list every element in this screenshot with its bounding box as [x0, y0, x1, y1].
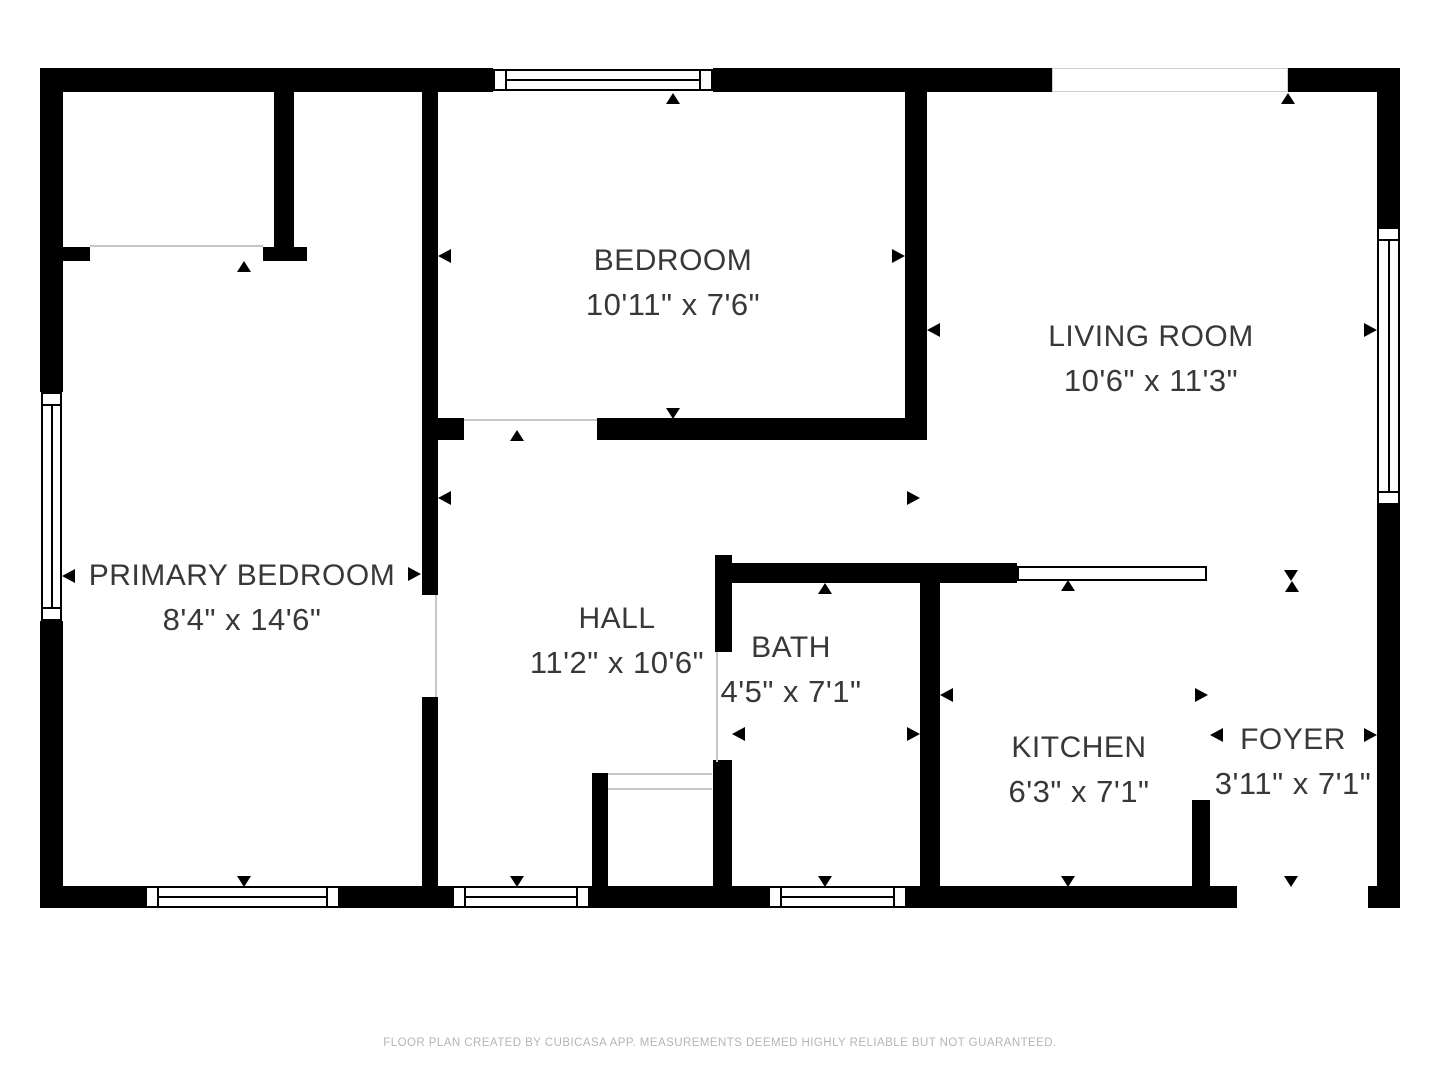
dimension-arrow-right: [907, 491, 920, 505]
wall-segment: [1377, 68, 1400, 227]
room-name: FOYER: [1215, 718, 1371, 762]
window-frame-line: [782, 896, 893, 898]
dimension-arrow-left: [940, 688, 953, 702]
dimension-arrow-right: [1364, 323, 1377, 337]
dimension-arrow-up: [818, 583, 832, 594]
window-frame-line: [466, 896, 576, 898]
dimension-arrow-right: [408, 567, 421, 581]
dimension-arrow-up: [1061, 580, 1075, 591]
dimension-arrow-down: [1284, 876, 1298, 887]
wall-segment: [713, 68, 1052, 92]
dimension-arrow-up: [237, 261, 251, 272]
room-dimensions: 6'3" x 7'1": [1008, 770, 1149, 814]
wall-segment: [63, 247, 90, 261]
doorway-gap: [1237, 886, 1368, 908]
room-name: BEDROOM: [586, 239, 760, 283]
dimension-arrow-up: [1285, 581, 1299, 592]
room-dimensions: 4'5" x 7'1": [720, 670, 861, 714]
room-label-primary-bedroom: PRIMARY BEDROOM 8'4" x 14'6": [89, 554, 395, 642]
dimension-arrow-left: [927, 323, 940, 337]
window-frame-line: [699, 71, 701, 89]
door-opening-line: [608, 773, 712, 775]
room-label-foyer: FOYER 3'11" x 7'1": [1215, 718, 1371, 806]
window-frame-line: [51, 406, 53, 607]
room-dimensions: 8'4" x 14'6": [89, 598, 395, 642]
wall-segment: [590, 886, 768, 908]
wall-segment: [40, 621, 63, 908]
entry-opening: [1052, 68, 1288, 92]
room-name: PRIMARY BEDROOM: [89, 554, 395, 598]
dimension-arrow-down: [818, 876, 832, 887]
window-frame-line: [576, 888, 578, 906]
window-symbol: [768, 886, 907, 908]
floor-plan-page: PRIMARY BEDROOM 8'4" x 14'6" BEDROOM 10'…: [0, 0, 1440, 1080]
dimension-arrow-left: [62, 569, 75, 583]
dimension-arrow-down: [237, 876, 251, 887]
dimension-arrow-right: [892, 249, 905, 263]
door-opening-line: [464, 419, 597, 421]
half-wall: [1017, 566, 1207, 581]
window-symbol: [1377, 227, 1400, 505]
window-frame-line: [507, 79, 699, 81]
room-dimensions: 10'6" x 11'3": [1048, 359, 1254, 403]
room-name: HALL: [530, 597, 704, 641]
dimension-arrow-up: [510, 430, 524, 441]
dimension-arrow-down: [1061, 876, 1075, 887]
dimension-arrow-left: [438, 491, 451, 505]
wall-segment: [274, 92, 294, 247]
dimension-arrow-up: [666, 93, 680, 104]
wall-segment: [715, 563, 1017, 583]
window-frame-line: [326, 888, 328, 906]
window-frame-line: [159, 896, 326, 898]
room-label-hall: HALL 11'2" x 10'6": [530, 597, 704, 685]
wall-segment: [905, 92, 927, 440]
room-name: BATH: [720, 626, 861, 670]
window-frame-line: [1379, 491, 1398, 493]
dimension-arrow-left: [438, 249, 451, 263]
wall-segment: [907, 886, 1237, 908]
wall-segment: [713, 760, 732, 886]
dimension-arrow-left: [732, 727, 745, 741]
room-dimensions: 11'2" x 10'6": [530, 641, 704, 685]
wall-segment: [40, 68, 493, 92]
wall-segment: [263, 247, 307, 261]
room-label-kitchen: KITCHEN 6'3" x 7'1": [1008, 726, 1149, 814]
wall-segment: [592, 773, 608, 886]
window-symbol: [41, 392, 62, 621]
dimension-arrow-right: [1195, 688, 1208, 702]
room-name: KITCHEN: [1008, 726, 1149, 770]
window-frame-line: [43, 607, 60, 609]
dimension-arrow-up: [1281, 93, 1295, 104]
window-frame-line: [893, 888, 895, 906]
dimension-arrow-down: [666, 408, 680, 419]
room-dimensions: 10'11" x 7'6": [586, 283, 760, 327]
wall-segment: [1192, 800, 1210, 886]
window-symbol: [145, 886, 340, 908]
window-symbol: [452, 886, 590, 908]
door-opening-line: [608, 788, 712, 790]
wall-segment: [438, 418, 464, 440]
wall-segment: [1377, 505, 1400, 908]
wall-segment: [920, 563, 940, 886]
dimension-arrow-right: [907, 727, 920, 741]
room-name: LIVING ROOM: [1048, 315, 1254, 359]
dimension-arrow-down: [510, 876, 524, 887]
wall-segment: [422, 92, 438, 595]
wall-segment: [40, 68, 63, 392]
room-label-bath: BATH 4'5" x 7'1": [720, 626, 861, 714]
window-frame-line: [1388, 241, 1390, 491]
door-opening-line: [90, 245, 263, 247]
dimension-arrow-down: [1284, 570, 1298, 581]
room-label-bedroom: BEDROOM 10'11" x 7'6": [586, 239, 760, 327]
wall-segment: [597, 418, 927, 440]
room-label-living-room: LIVING ROOM 10'6" x 11'3": [1048, 315, 1254, 403]
wall-segment: [422, 697, 438, 908]
window-symbol: [493, 69, 713, 91]
footer-disclaimer: FLOOR PLAN CREATED BY CUBICASA APP. MEAS…: [0, 1037, 1440, 1049]
door-opening-line: [435, 595, 437, 697]
door-opening-line: [716, 652, 718, 762]
room-dimensions: 3'11" x 7'1": [1215, 762, 1371, 806]
